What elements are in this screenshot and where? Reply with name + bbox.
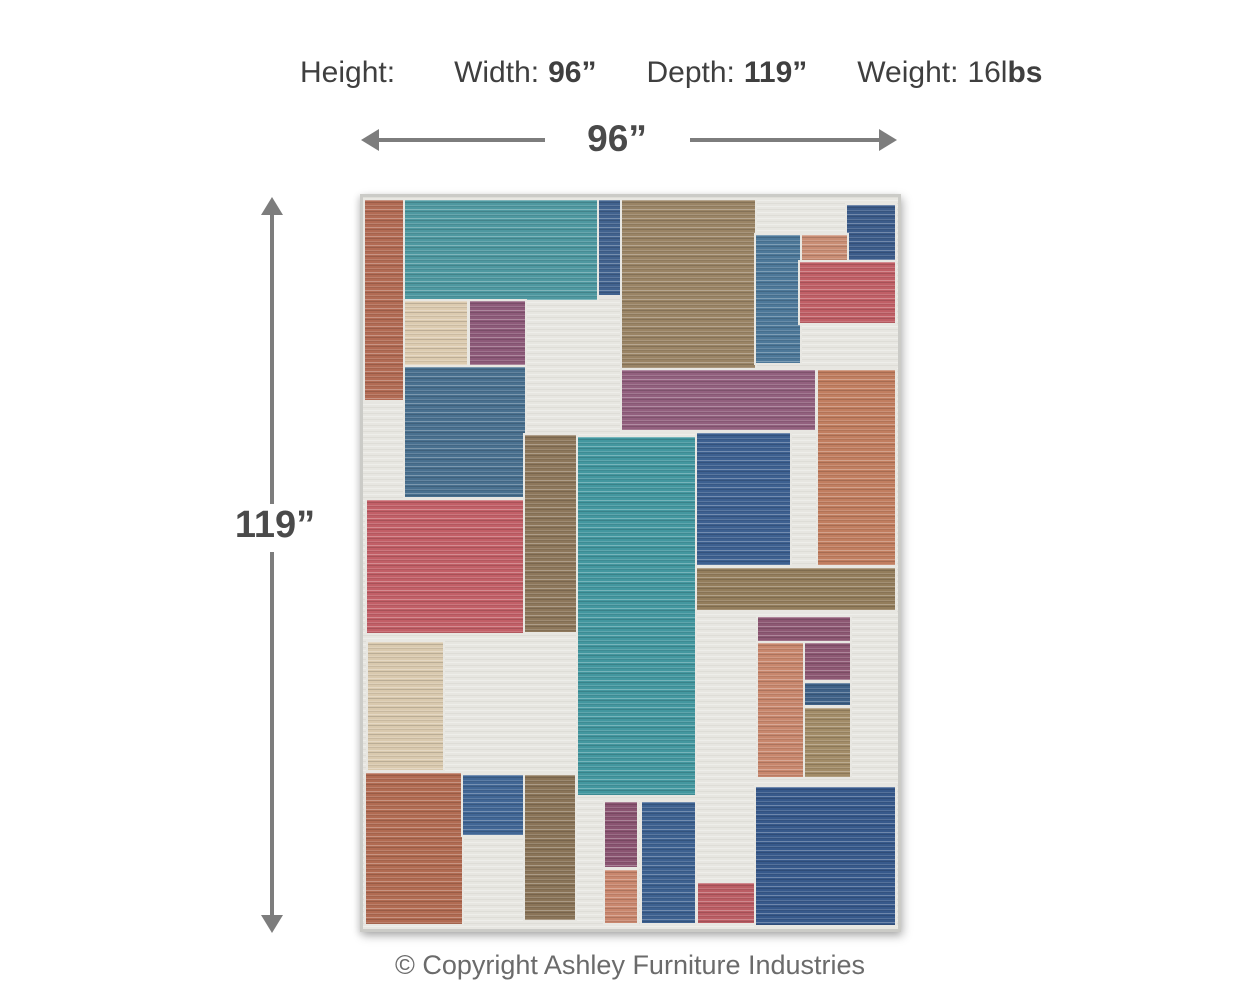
plum-band-mid-patch xyxy=(622,370,815,430)
navy-small-bottom-right-patch xyxy=(805,683,850,705)
red-top-right-patch xyxy=(800,262,895,323)
brown-band-right-patch xyxy=(697,568,895,610)
tan-strip-bottom-left-patch xyxy=(368,642,443,770)
dimension-depth: Depth: 119” xyxy=(646,55,807,91)
height-label: Height: xyxy=(300,55,395,91)
dimensions-header: Height: Width: 96” Depth: 119” Weight: 1… xyxy=(300,55,1200,91)
dimension-width: Width: 96” xyxy=(454,55,596,91)
brown-big-top-patch xyxy=(622,200,755,368)
plum-bottom-center-patch xyxy=(605,802,637,867)
navy-corner-top-right-patch xyxy=(847,205,895,260)
arrow-right-icon xyxy=(879,129,897,151)
width-measurement: 96” xyxy=(552,120,682,157)
height-arrow-line-bottom xyxy=(270,552,274,916)
tan-block-bottom-right-patch xyxy=(805,708,850,777)
plum-band-bottom-right-patch xyxy=(758,617,850,643)
width-arrow-line-left xyxy=(377,138,545,142)
salmon-bottom-center-patch xyxy=(605,870,637,923)
salmon-vert-bottom-right-patch xyxy=(758,643,805,777)
crimson-bottom-center-patch xyxy=(698,883,757,923)
beige-mid-left-patch xyxy=(405,301,467,365)
steelblue-strip-top-right-patch xyxy=(756,235,800,363)
purple-mid-left-patch xyxy=(470,301,525,365)
navy-big-bottom-right-patch xyxy=(756,787,895,925)
navy-mid-right-patch xyxy=(697,433,790,565)
red-big-left-patch xyxy=(367,500,525,633)
product-dimension-diagram: Height: Width: 96” Depth: 119” Weight: 1… xyxy=(0,0,1250,1000)
copyright-text: © Copyright Ashley Furniture Industries xyxy=(0,950,1250,981)
weight-value: 16lbs xyxy=(967,55,1042,91)
blue-bottom-center-patch xyxy=(642,802,695,923)
terracotta-bottom-left-patch xyxy=(366,773,462,924)
weight-label: Weight: xyxy=(857,55,958,91)
dimension-weight: Weight: 16lbs xyxy=(857,55,1042,91)
salmon-small-top-right-patch xyxy=(802,235,847,262)
teal-top-patch xyxy=(405,200,597,300)
rug-product-image xyxy=(360,194,901,932)
teal-center-patch xyxy=(578,437,695,795)
height-measurement: 119” xyxy=(195,506,355,544)
width-arrow-line-right xyxy=(690,138,880,142)
rust-strip-top-left-patch xyxy=(365,200,405,400)
width-value: 96” xyxy=(548,55,596,91)
brown-strip-bottom-left-patch xyxy=(525,775,575,920)
height-arrow-line-top xyxy=(270,213,274,504)
depth-value: 119” xyxy=(744,55,807,91)
plum-small-bottom-right-patch xyxy=(805,643,850,680)
brown-strip-mid-patch xyxy=(525,435,577,632)
blue-bottom-left-patch xyxy=(463,775,523,835)
width-label: Width: xyxy=(454,55,539,91)
orange-right-patch xyxy=(818,370,895,565)
navy-strip-top-patch xyxy=(599,200,620,295)
arrow-down-icon xyxy=(261,915,283,933)
depth-label: Depth: xyxy=(646,55,734,91)
steelblue-mid-left-patch xyxy=(405,367,525,497)
dimension-height: Height: xyxy=(300,55,404,91)
